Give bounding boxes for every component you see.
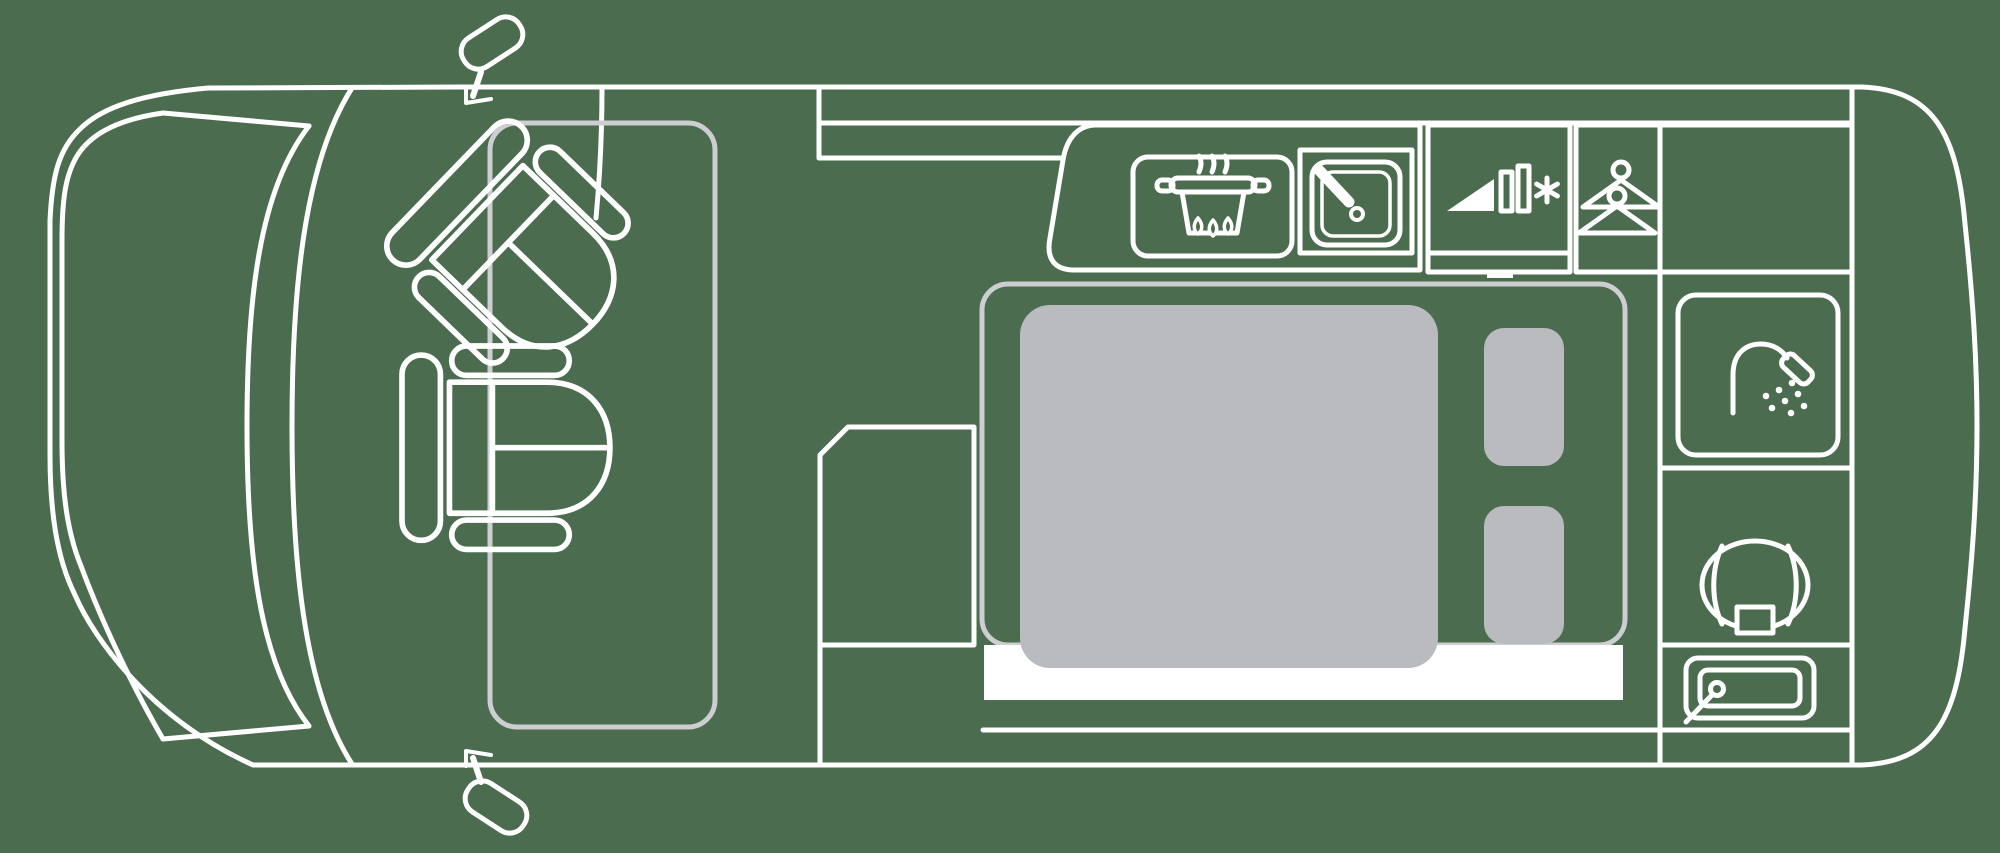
shower-icon: [1733, 344, 1815, 416]
bathroom: [1660, 295, 1852, 722]
kitchen-counter-outline: [1049, 125, 1420, 270]
pillow-bottom: [1484, 506, 1564, 644]
rear-swivel-seat: [402, 346, 610, 549]
fridge-icon: [1447, 166, 1557, 211]
stove-icon: [1157, 156, 1269, 236]
hangers-icon: [1579, 162, 1659, 233]
pillow-top: [1484, 328, 1564, 466]
windshield-base-arc: [247, 126, 309, 726]
refrigerator: [1428, 125, 1570, 278]
mattress: [1020, 305, 1438, 668]
fridge-handle: [1487, 272, 1513, 278]
toilet-icon: [1702, 541, 1808, 633]
hood-top-edge: [163, 113, 309, 126]
wardrobe: [1576, 125, 1660, 272]
cab-door-seam: [596, 88, 602, 218]
mid-cabinet: [820, 427, 974, 645]
camper-floorplan: [0, 0, 2000, 853]
driver-cab: [373, 107, 715, 727]
front-bumper-line: [62, 113, 163, 739]
rear-storage-box: [1660, 125, 1852, 272]
washbasin-icon: [1686, 658, 1814, 722]
snowflake-icon: [1537, 178, 1558, 202]
seat-platform: [490, 123, 715, 727]
sink-icon: [1300, 150, 1412, 253]
floorplan-canvas: [0, 0, 2000, 853]
windshield-roof-arc: [292, 88, 352, 764]
double-bed: [982, 284, 1625, 700]
kitchenette: [1049, 125, 1420, 270]
